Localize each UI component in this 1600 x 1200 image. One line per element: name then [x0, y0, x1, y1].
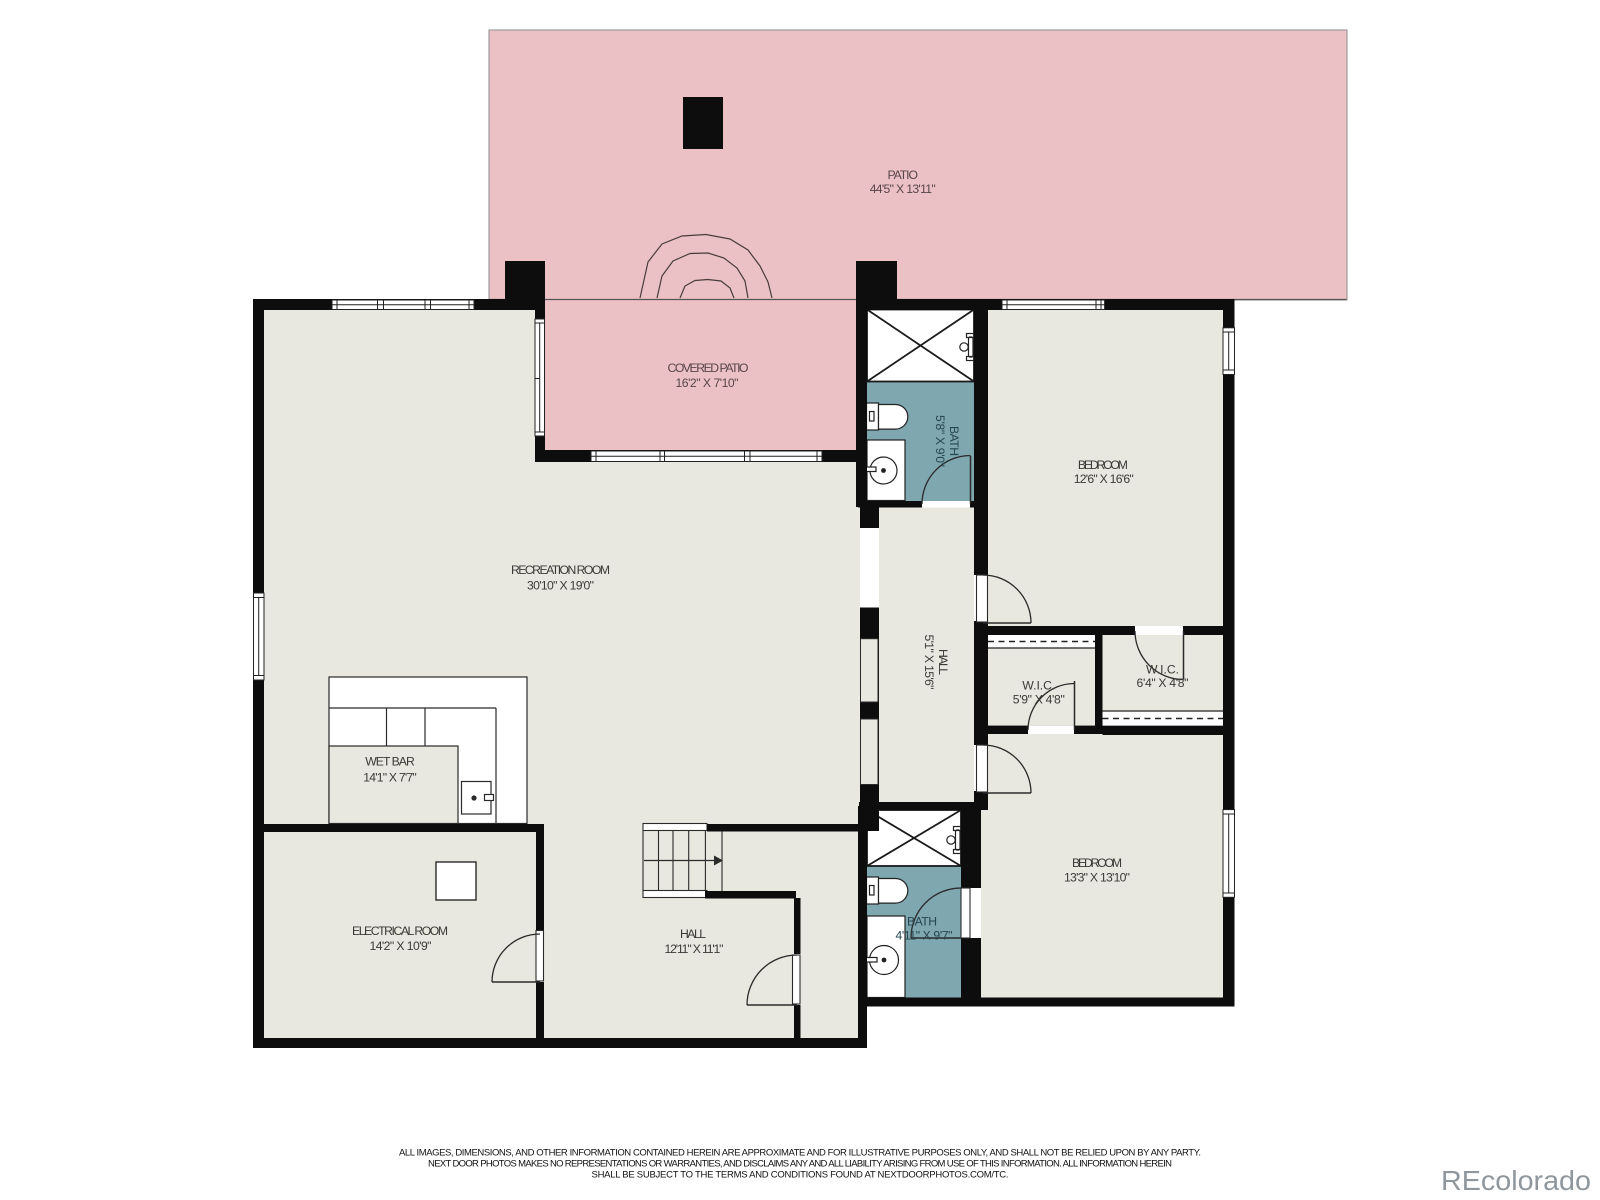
- svg-text:12'11" X 11'1": 12'11" X 11'1": [665, 942, 724, 956]
- svg-text:NEXT DOOR PHOTOS MAKES NO REPR: NEXT DOOR PHOTOS MAKES NO REPRESENTATION…: [428, 1159, 1172, 1170]
- svg-text:W.I.C.: W.I.C.: [1146, 663, 1179, 677]
- svg-text:BATH: BATH: [947, 426, 961, 456]
- svg-text:REcolorado: REcolorado: [1441, 1165, 1591, 1196]
- svg-text:5'9" X 4'8": 5'9" X 4'8": [1013, 692, 1065, 706]
- svg-text:16'2" X 7'10": 16'2" X 7'10": [676, 376, 739, 390]
- svg-text:COVERED PATIO: COVERED PATIO: [668, 361, 749, 375]
- svg-text:6'4" X 4'8": 6'4" X 4'8": [1137, 676, 1189, 690]
- svg-text:30'10" X 19'0": 30'10" X 19'0": [527, 579, 594, 593]
- svg-text:5'1" X 15'6": 5'1" X 15'6": [922, 635, 936, 690]
- svg-text:4'11" X 9'7": 4'11" X 9'7": [896, 929, 953, 943]
- svg-text:12'6" X 16'6": 12'6" X 16'6": [1074, 472, 1134, 486]
- svg-text:14'2" X 10'9": 14'2" X 10'9": [370, 939, 432, 953]
- svg-text:44'5" X 13'11": 44'5" X 13'11": [870, 182, 936, 196]
- svg-text:BATH: BATH: [907, 914, 937, 928]
- svg-text:13'3" X 13'10": 13'3" X 13'10": [1064, 871, 1130, 885]
- svg-text:W.I.C.: W.I.C.: [1022, 679, 1055, 693]
- svg-text:BEDROOM: BEDROOM: [1072, 856, 1122, 870]
- svg-text:SHALL BE SUBJECT TO THE TERMS: SHALL BE SUBJECT TO THE TERMS AND CONDIT…: [592, 1170, 1009, 1181]
- svg-text:14'1" X 7'7": 14'1" X 7'7": [363, 771, 417, 785]
- svg-text:WET BAR: WET BAR: [365, 755, 415, 769]
- svg-text:RECREATION ROOM: RECREATION ROOM: [511, 563, 610, 577]
- svg-text:ALL IMAGES, DIMENSIONS, AND OT: ALL IMAGES, DIMENSIONS, AND OTHER INFORM…: [399, 1148, 1201, 1159]
- svg-text:BEDROOM: BEDROOM: [1078, 458, 1128, 472]
- svg-text:ELECTRICAL ROOM: ELECTRICAL ROOM: [352, 924, 448, 938]
- svg-text:HALL: HALL: [680, 927, 706, 941]
- svg-text:HALL: HALL: [936, 649, 950, 675]
- svg-text:PATIO: PATIO: [887, 168, 918, 182]
- svg-text:5'8" X 9'0": 5'8" X 9'0": [933, 415, 947, 467]
